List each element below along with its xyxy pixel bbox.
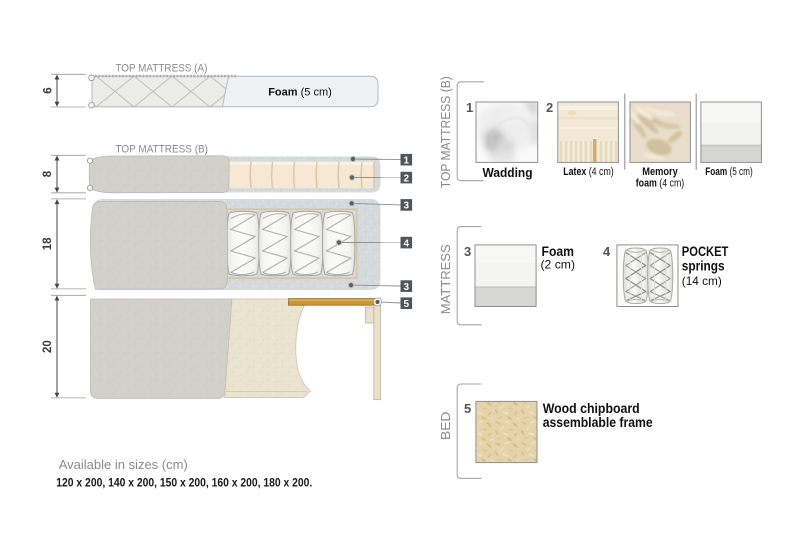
svg-text:springs: springs <box>682 259 725 274</box>
svg-text:2: 2 <box>404 173 410 184</box>
svg-text:TOP MATTRESS (A): TOP MATTRESS (A) <box>115 62 207 74</box>
svg-text:Wood chipboard: Wood chipboard <box>543 401 640 416</box>
svg-text:(2 cm): (2 cm) <box>541 258 576 272</box>
svg-text:1: 1 <box>404 155 410 166</box>
svg-text:8: 8 <box>42 170 54 177</box>
svg-text:foam (4 cm): foam (4 cm) <box>636 178 685 190</box>
svg-text:TOP MATTRESS (B): TOP MATTRESS (B) <box>438 76 453 188</box>
svg-text:Foam (5 cm): Foam (5 cm) <box>268 87 332 99</box>
svg-text:Memory: Memory <box>642 166 678 178</box>
svg-text:Latex (4 cm): Latex (4 cm) <box>563 166 614 178</box>
svg-text:Foam (5 cm): Foam (5 cm) <box>705 166 753 178</box>
svg-text:4: 4 <box>404 238 410 249</box>
svg-text:6: 6 <box>43 87 55 93</box>
svg-text:2: 2 <box>546 100 553 115</box>
svg-text:3: 3 <box>404 282 410 293</box>
svg-text:3: 3 <box>404 201 410 212</box>
svg-text:BED: BED <box>438 412 453 441</box>
svg-text:120 x 200, 140 x 200, 150 x 20: 120 x 200, 140 x 200, 150 x 200, 160 x 2… <box>56 476 312 490</box>
svg-text:Available in sizes (cm): Available in sizes (cm) <box>59 457 188 472</box>
svg-text:3: 3 <box>464 244 471 259</box>
svg-text:MATTRESS: MATTRESS <box>438 244 453 314</box>
svg-text:1: 1 <box>466 100 473 115</box>
svg-text:assemblable frame: assemblable frame <box>543 415 653 430</box>
svg-text:(14 cm): (14 cm) <box>682 274 722 288</box>
svg-text:5: 5 <box>404 299 410 310</box>
svg-text:20: 20 <box>42 340 54 353</box>
svg-text:POCKET: POCKET <box>682 244 729 259</box>
svg-text:4: 4 <box>603 244 611 259</box>
svg-text:TOP MATTRESS (B): TOP MATTRESS (B) <box>116 143 209 155</box>
svg-text:Wadding: Wadding <box>483 165 533 180</box>
svg-text:5: 5 <box>464 401 471 416</box>
svg-text:18: 18 <box>42 237 54 250</box>
